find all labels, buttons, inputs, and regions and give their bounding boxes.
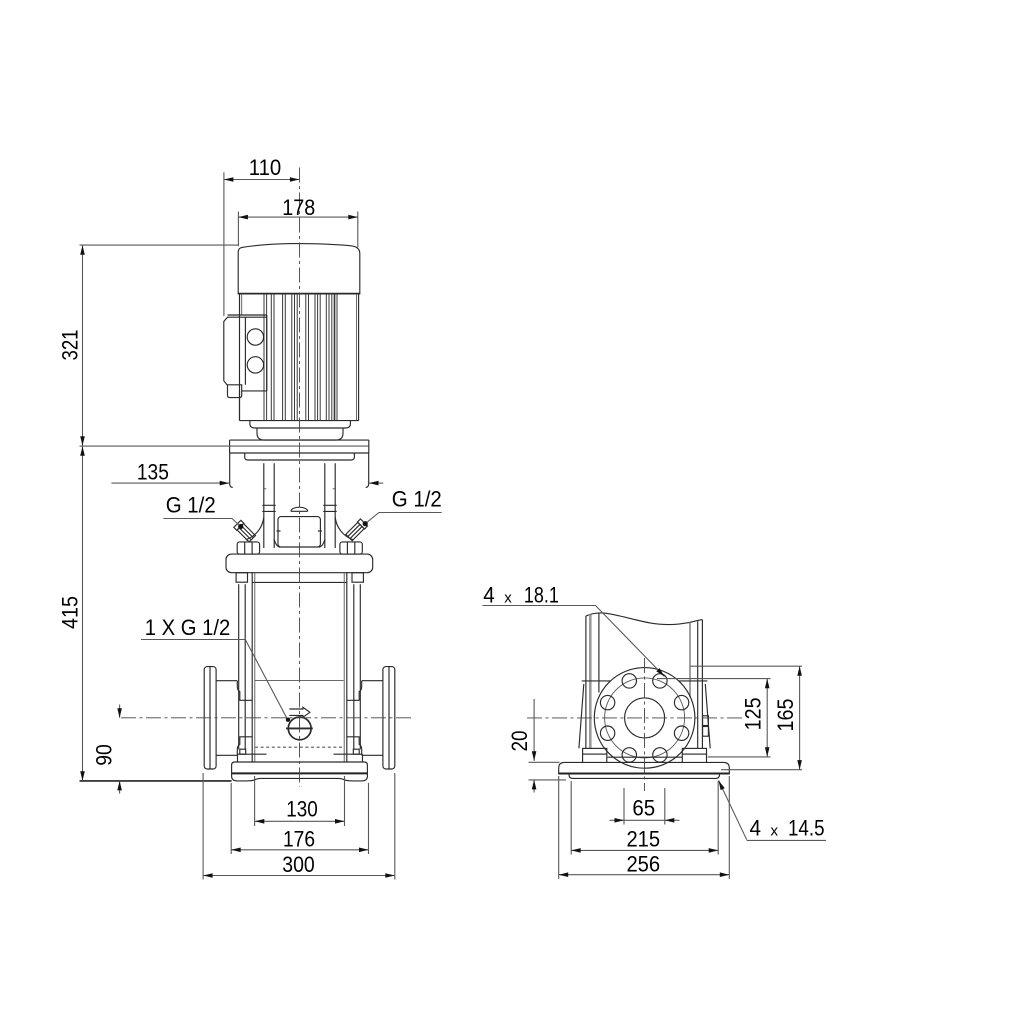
svg-text:20: 20 (507, 731, 532, 752)
svg-text:90: 90 (91, 744, 116, 766)
svg-text:4: 4 (750, 816, 762, 841)
svg-text:321: 321 (58, 330, 83, 361)
svg-text:x: x (771, 823, 779, 840)
svg-text:135: 135 (137, 459, 169, 484)
svg-text:14.5: 14.5 (788, 816, 825, 841)
svg-text:1 X G 1/2: 1 X G 1/2 (145, 615, 231, 640)
svg-text:110: 110 (249, 155, 282, 180)
svg-text:125: 125 (741, 697, 766, 730)
svg-text:165: 165 (773, 699, 798, 732)
svg-text:4: 4 (483, 582, 495, 607)
svg-text:G 1/2: G 1/2 (392, 486, 442, 511)
svg-text:415: 415 (58, 596, 83, 629)
svg-text:215: 215 (626, 826, 660, 851)
svg-text:18.1: 18.1 (524, 582, 559, 607)
svg-text:G 1/2: G 1/2 (166, 492, 216, 517)
svg-text:300: 300 (282, 852, 315, 877)
svg-text:130: 130 (286, 797, 318, 822)
svg-text:x: x (504, 589, 512, 606)
svg-text:178: 178 (282, 195, 315, 220)
svg-text:176: 176 (283, 827, 315, 852)
svg-text:256: 256 (626, 851, 660, 876)
svg-text:65: 65 (632, 796, 655, 821)
